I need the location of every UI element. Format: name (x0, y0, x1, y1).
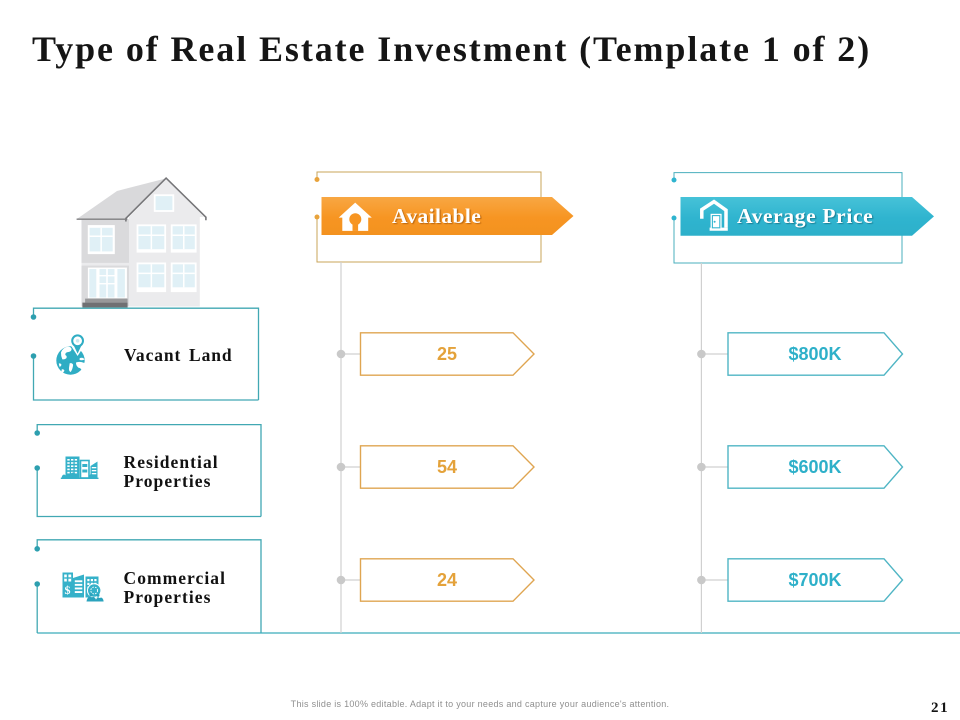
svg-text:$: $ (65, 583, 71, 597)
